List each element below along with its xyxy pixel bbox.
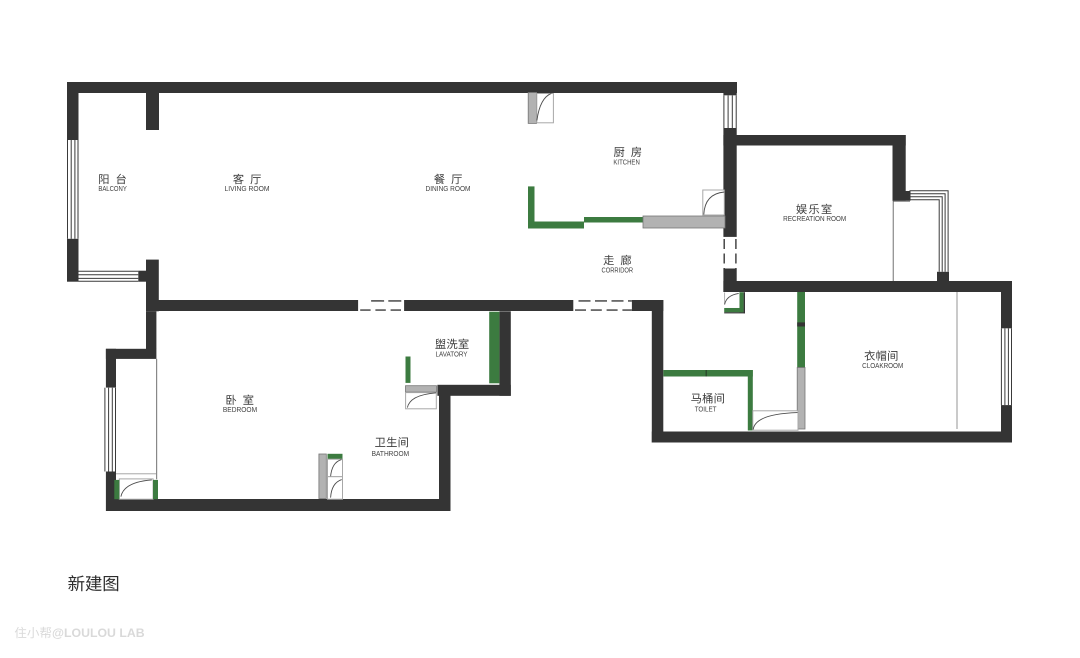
- svg-text:RECREATION ROOM: RECREATION ROOM: [783, 214, 846, 223]
- svg-text:BALCONY: BALCONY: [98, 184, 127, 193]
- svg-text:LAVATORY: LAVATORY: [436, 349, 468, 358]
- svg-text:TOILET: TOILET: [695, 405, 717, 414]
- svg-text:DINING ROOM: DINING ROOM: [426, 184, 471, 193]
- svg-text:LIVING ROOM: LIVING ROOM: [225, 184, 270, 193]
- svg-text:BEDROOM: BEDROOM: [223, 405, 257, 414]
- svg-text:CLOAKROOM: CLOAKROOM: [862, 361, 903, 370]
- svg-text:BATHROOM: BATHROOM: [372, 449, 410, 458]
- svg-text:KITCHEN: KITCHEN: [613, 157, 639, 166]
- svg-text:CORRIDOR: CORRIDOR: [602, 265, 634, 274]
- svg-text:@LOULOU LAB: @LOULOU LAB: [52, 626, 145, 640]
